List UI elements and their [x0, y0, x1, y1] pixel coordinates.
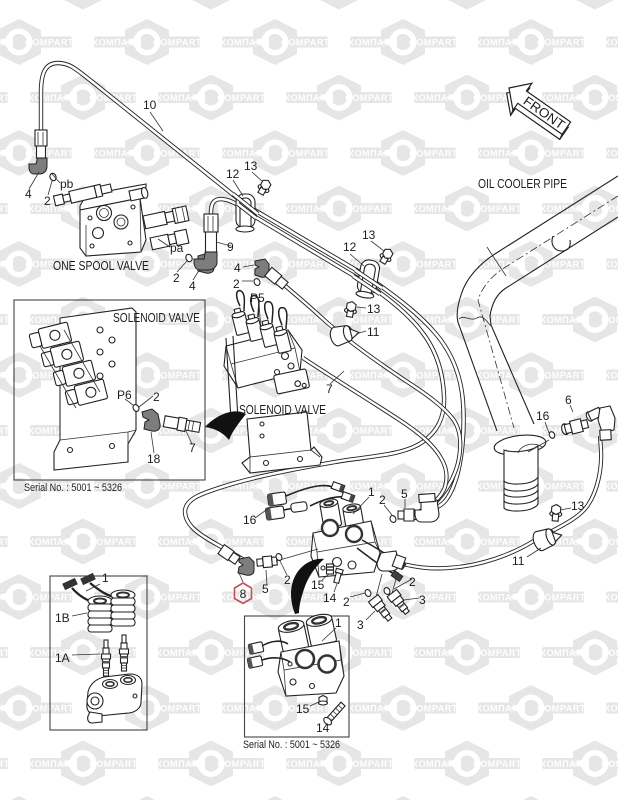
svg-text:15: 15	[296, 702, 310, 716]
svg-text:14: 14	[323, 591, 337, 605]
svg-text:5: 5	[401, 487, 408, 501]
svg-text:3: 3	[419, 593, 426, 607]
svg-text:12: 12	[226, 167, 240, 181]
svg-text:16: 16	[243, 513, 257, 527]
svg-text:1: 1	[368, 485, 375, 499]
svg-text:4: 4	[189, 279, 196, 293]
svg-text:8: 8	[240, 587, 247, 601]
svg-text:2: 2	[284, 573, 291, 587]
svg-text:2: 2	[343, 595, 350, 609]
svg-text:13: 13	[362, 228, 376, 242]
svg-text:7: 7	[189, 441, 196, 455]
svg-text:P6: P6	[117, 388, 132, 402]
svg-text:2: 2	[153, 390, 160, 404]
svg-text:SOLENOID VALVE: SOLENOID VALVE	[239, 403, 326, 417]
svg-text:13: 13	[367, 302, 381, 316]
svg-text:P5: P5	[250, 291, 265, 305]
svg-text:12: 12	[343, 240, 357, 254]
svg-text:2: 2	[233, 277, 240, 291]
svg-text:OIL COOLER PIPE: OIL COOLER PIPE	[478, 177, 567, 191]
svg-text:ONE SPOOL VALVE: ONE SPOOL VALVE	[53, 259, 149, 273]
svg-text:1B: 1B	[55, 611, 70, 625]
svg-text:18: 18	[147, 452, 161, 466]
svg-text:11: 11	[512, 554, 525, 568]
svg-text:Serial No. : 5001 ~ 5326: Serial No. : 5001 ~ 5326	[24, 482, 122, 494]
svg-text:2: 2	[409, 575, 416, 589]
svg-text:7: 7	[326, 382, 333, 396]
svg-text:13: 13	[244, 159, 258, 173]
svg-text:2: 2	[44, 194, 51, 208]
svg-text:16: 16	[536, 409, 550, 423]
svg-text:9: 9	[227, 240, 234, 254]
svg-text:2: 2	[173, 271, 180, 285]
svg-text:4: 4	[25, 187, 32, 201]
svg-text:5: 5	[262, 582, 269, 596]
svg-text:Serial No. : 5001 ~ 5326: Serial No. : 5001 ~ 5326	[243, 739, 340, 751]
svg-text:14: 14	[316, 721, 330, 735]
svg-text:6: 6	[565, 393, 572, 407]
svg-text:pa: pa	[170, 241, 184, 255]
svg-text:1: 1	[102, 571, 109, 585]
svg-text:4: 4	[234, 261, 241, 275]
svg-text:2: 2	[379, 493, 386, 507]
svg-text:10: 10	[143, 98, 157, 112]
svg-text:pb: pb	[60, 177, 74, 191]
svg-text:1: 1	[335, 616, 342, 630]
svg-text:15: 15	[311, 578, 325, 592]
svg-text:11: 11	[367, 325, 380, 339]
svg-text:3: 3	[357, 618, 364, 632]
svg-text:1A: 1A	[55, 651, 70, 665]
svg-text:13: 13	[571, 499, 585, 513]
svg-text:SOLENOID VALVE: SOLENOID VALVE	[113, 311, 200, 325]
